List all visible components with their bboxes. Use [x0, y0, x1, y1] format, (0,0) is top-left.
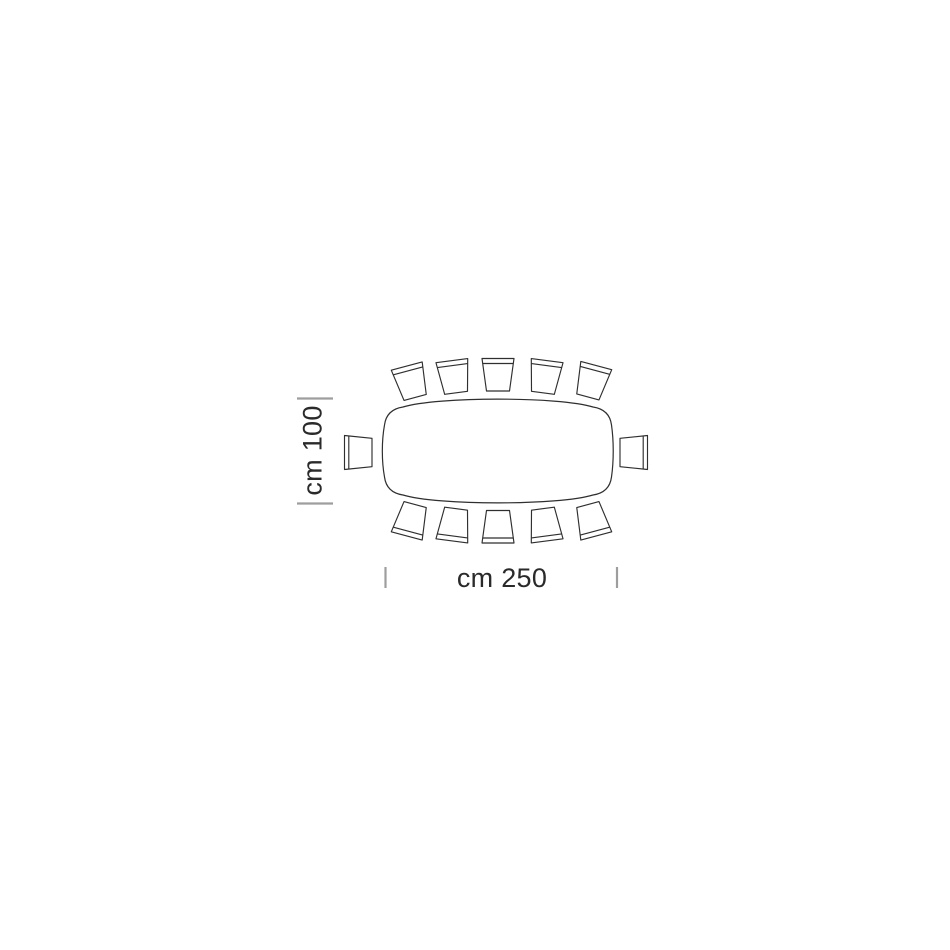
chair-bottom-4 [527, 507, 563, 543]
chair-bottom-1 [391, 500, 430, 540]
chair-bottom-5 [572, 500, 611, 540]
chair-seat-outline [572, 361, 611, 401]
chair-backrest-line [437, 534, 467, 538]
chair-backrest-line [531, 534, 561, 538]
chairs-layer [345, 359, 648, 544]
chair-seat-outline [572, 500, 611, 540]
table-dimension-diagram: cm 100 cm 250 [0, 0, 950, 950]
chair-seat-outline [391, 362, 430, 402]
chair-left-end [345, 436, 373, 470]
chair-right-end [620, 436, 648, 470]
chair-backrest-line [437, 364, 467, 368]
width-dim-label: cm 100 [298, 405, 328, 495]
chair-bottom-3 [482, 511, 514, 544]
chair-top-2 [436, 359, 472, 395]
length-dim-label: cm 250 [457, 563, 547, 593]
chair-bottom-2 [436, 507, 472, 543]
chair-backrest-line [531, 364, 561, 368]
chair-top-3 [482, 359, 514, 392]
table-top-outline [382, 399, 613, 503]
chair-top-4 [527, 359, 563, 395]
chair-top-1 [391, 362, 430, 402]
chair-top-5 [572, 361, 611, 401]
drawing-canvas: cm 100 cm 250 [0, 0, 950, 950]
chair-seat-outline [391, 500, 430, 540]
width-dimension: cm 100 [297, 399, 333, 504]
length-dimension: cm 250 [386, 563, 618, 593]
